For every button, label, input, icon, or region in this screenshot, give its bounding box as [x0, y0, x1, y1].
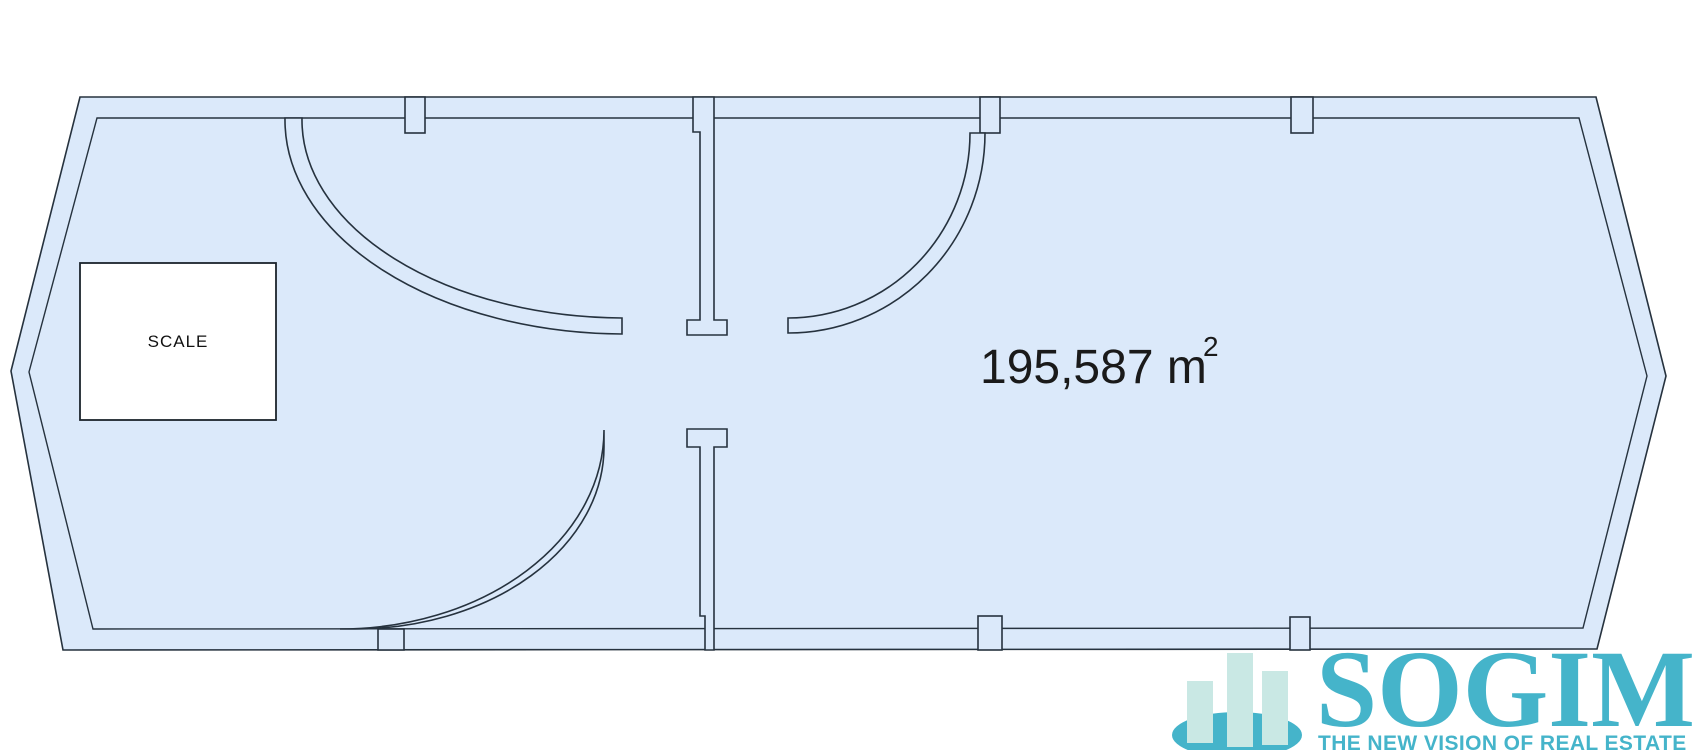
scale-box-label: SCALE [148, 332, 209, 351]
pillar-bottom-center [978, 616, 1002, 650]
pillar-bottom-right [1290, 617, 1310, 650]
floor-plan-drawing: SCALE 195,587 m 2 SOGIM THE NEW VISION O… [0, 0, 1707, 750]
floor-plan-page: SCALE 195,587 m 2 SOGIM THE NEW VISION O… [0, 0, 1707, 750]
door-jamb-top-middle [980, 97, 1000, 133]
logo-building-icon [1172, 653, 1302, 750]
logo-bar-middle [1227, 653, 1253, 747]
logo-bar-right [1262, 671, 1288, 745]
area-value: 195,587 m [980, 341, 1207, 394]
logo-bar-left [1187, 681, 1213, 743]
pillar-top-left [405, 97, 425, 133]
logo-tagline: THE NEW VISION OF REAL ESTATE [1318, 732, 1687, 750]
pillar-top-right [1291, 97, 1313, 133]
area-superscript: 2 [1203, 331, 1219, 362]
door-jamb-bottom-left [378, 629, 404, 650]
